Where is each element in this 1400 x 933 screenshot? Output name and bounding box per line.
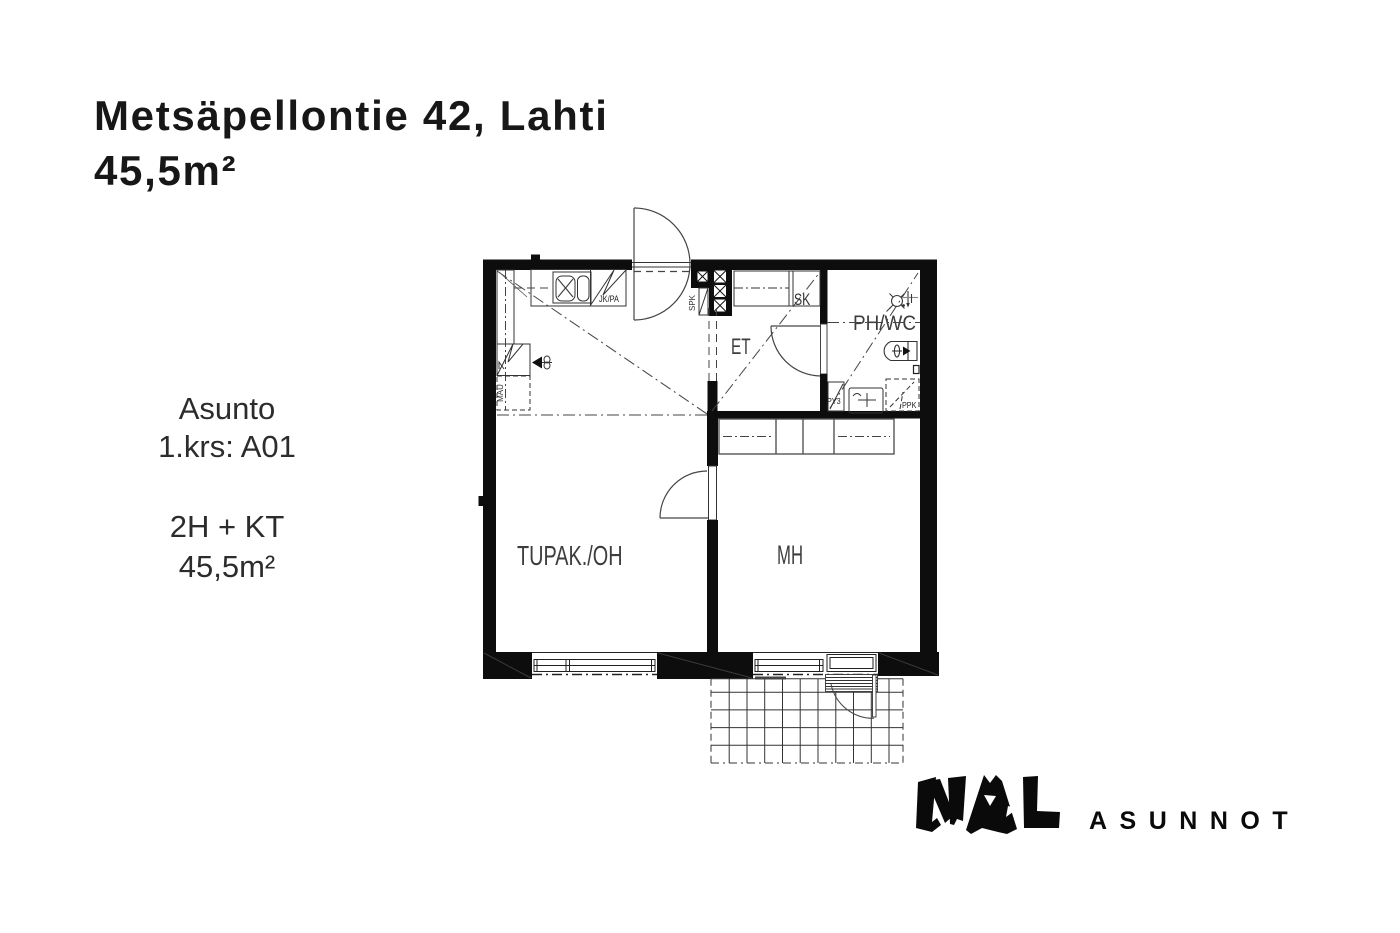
svg-text:TUPAK./OH: TUPAK./OH — [517, 541, 623, 572]
svg-text:SK: SK — [794, 291, 810, 309]
svg-text:PY3: PY3 — [827, 396, 841, 406]
svg-text:MH: MH — [777, 540, 803, 570]
svg-text:PPK: PPK — [902, 400, 917, 410]
svg-text:SPK: SPK — [688, 294, 697, 311]
svg-text:ET: ET — [731, 335, 751, 359]
svg-text:PH/WC: PH/WC — [853, 312, 916, 335]
svg-text:MAU: MAU — [496, 384, 505, 402]
svg-text:JK/PA: JK/PA — [599, 294, 619, 304]
